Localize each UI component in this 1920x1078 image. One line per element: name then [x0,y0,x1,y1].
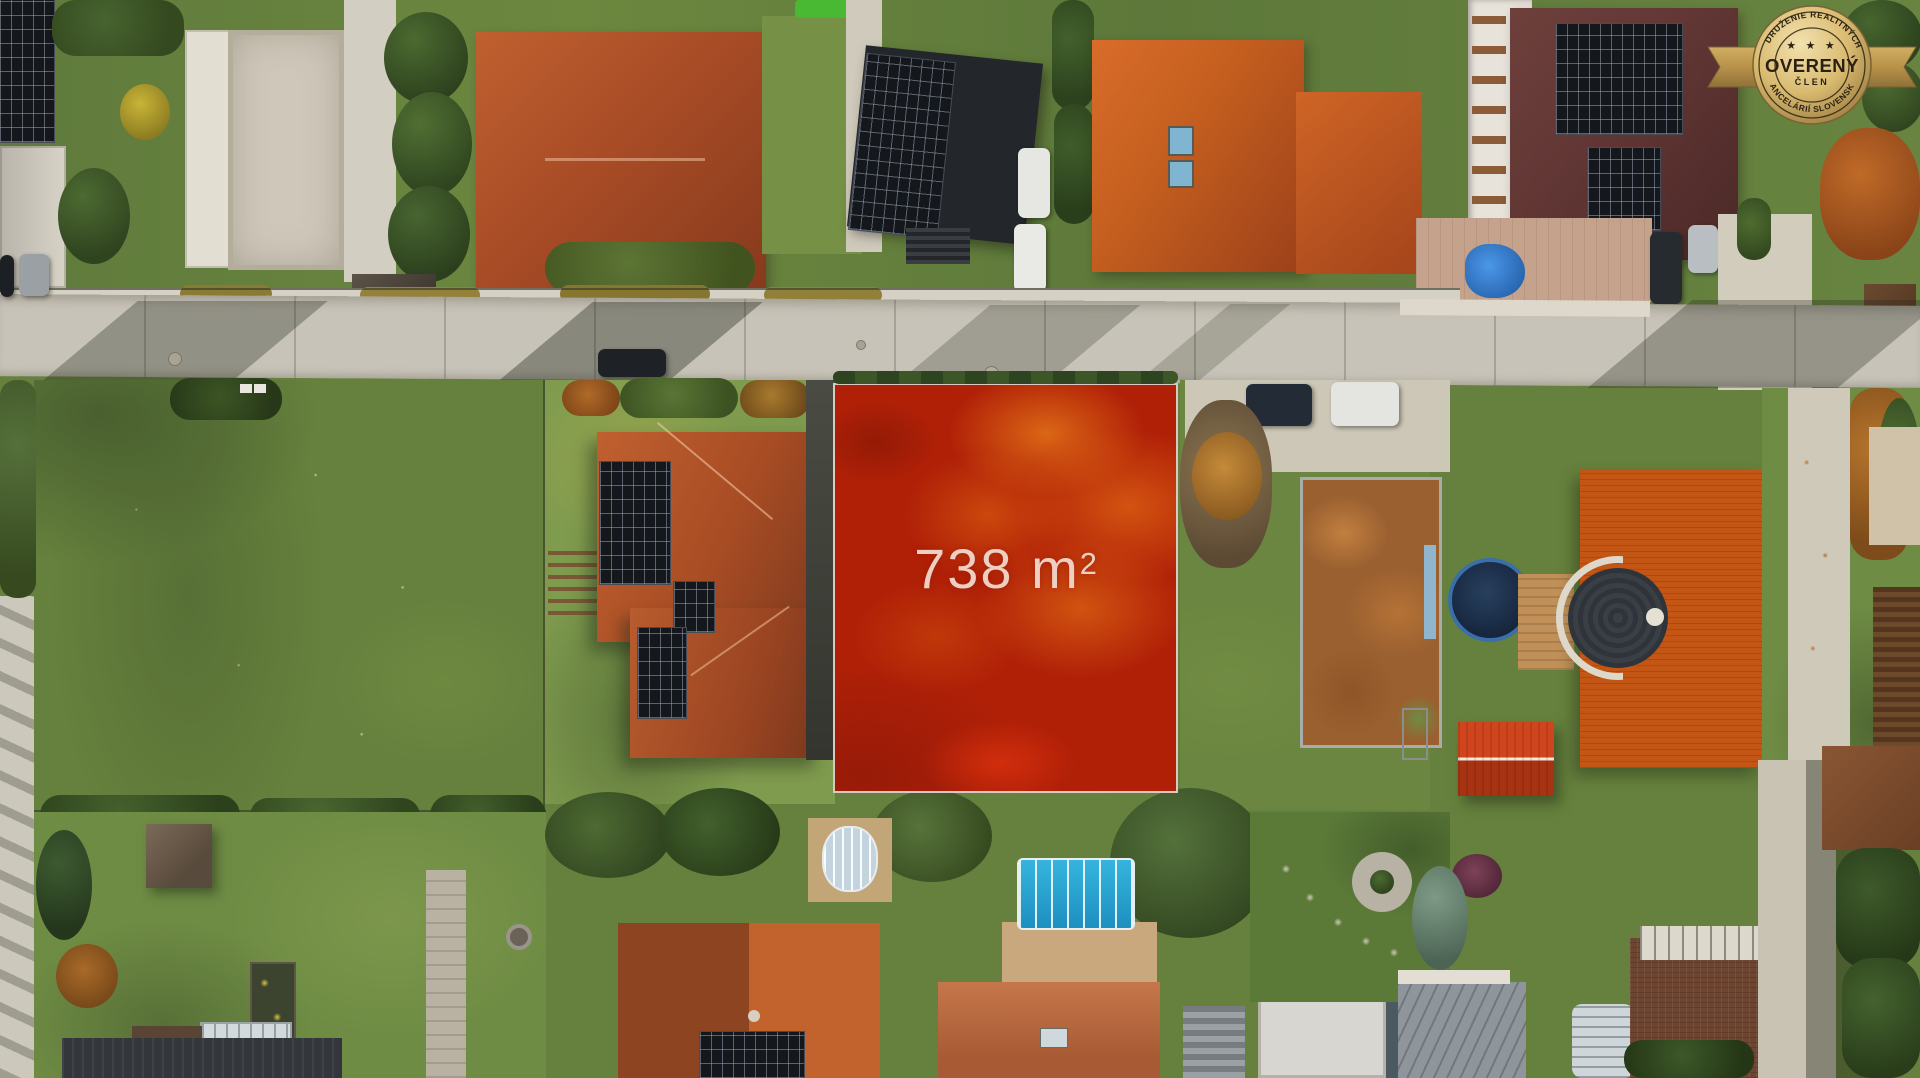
parked-car-far-left [19,254,49,296]
retaining-wall [1400,299,1650,317]
garden-trees [660,788,780,876]
covered-pool-dome [822,826,878,892]
garden-frame [1402,708,1428,760]
parked-dark-car [598,349,666,377]
fire-pit [506,924,532,950]
orange-roof-wing [1296,92,1422,274]
blue-tarp [1465,244,1525,298]
center-shrub [1370,870,1394,894]
skylight [1168,160,1194,188]
right-hedge [1836,848,1920,968]
shrub-row [620,378,738,418]
green-pool [795,0,851,18]
hedge [1054,104,1094,224]
roof-ridge [545,158,705,161]
flat-roof-house [185,30,231,268]
fence-line [0,288,1460,290]
sign-board [240,384,252,393]
silver-car [1688,225,1718,273]
parked-car-far-left [0,255,14,297]
far-right-roof [1869,427,1920,545]
manhole [168,352,182,366]
manhole [856,340,866,350]
solar-thermal-panel [1424,545,1436,639]
tree [384,12,468,104]
far-right-brown-roof [1822,746,1920,850]
solar-roof [0,0,54,142]
plot-area-label: 738 m2 [835,541,1176,597]
aerial-photo: 738 m2 [0,0,1920,1078]
solar-array [700,1032,804,1078]
solar-array [674,582,714,632]
hedge [0,380,36,598]
skylight [1168,126,1194,156]
conifer [36,830,92,940]
solar-roof [849,54,955,238]
hedge [1737,198,1771,260]
white-wall [1398,970,1510,984]
hedge [52,0,184,56]
asphalt-driveway [806,380,836,760]
skylight [1040,1028,1068,1048]
tree [392,92,472,196]
solar-array [1556,24,1682,134]
balcony-rails [1472,8,1506,234]
pergola [548,545,600,615]
badge-stars: ★ ★ ★ [1786,39,1838,52]
blue-pool-enclosure [1017,858,1135,930]
pool-patio [1002,922,1157,986]
badge-title: OVERENÝ [1765,55,1859,76]
dark-gable-house [62,1038,342,1078]
autumn-shrub [56,944,118,1008]
dome-hub [1646,608,1664,626]
bottom-hedge [1624,1040,1754,1078]
conservatory [1640,926,1764,960]
garden-trees [545,792,671,878]
verified-badge: ZDRUŽENIE REALITNÝCH KANCELÁRIÍ SLOVENSK… [1706,0,1918,132]
blue-conifer [1412,866,1468,970]
garden-cabin [146,824,212,888]
solar-array [600,462,670,584]
meadow [34,380,546,812]
right-hedge [1842,958,1920,1078]
red-shed [1458,722,1554,796]
area-unit: m [1031,537,1080,600]
gray-seam-roof-house [1398,982,1526,1078]
gravel-roof [228,30,344,270]
area-exponent: 2 [1080,546,1097,581]
far-right-pergola [1873,587,1920,757]
white-car [1014,224,1046,292]
carport-slats [906,228,970,264]
gray-pergola [1183,1006,1245,1078]
plot-street-hedge [833,371,1178,384]
stone-wall [426,870,466,1078]
badge-subtitle: ČLEN [1795,76,1830,87]
tree [388,186,470,282]
footpath [0,596,34,1078]
dark-car [1650,232,1682,304]
autumn-shrub [740,380,810,418]
area-value: 738 [914,537,1013,600]
tree [58,168,130,264]
orange-roof-house [1092,40,1304,272]
solar-array [638,628,686,718]
highlighted-plot-overlay: 738 m2 [833,383,1178,793]
hedge [1052,0,1094,110]
chimney [748,1010,760,1022]
autumn-shrub [562,380,620,416]
autumn-leaves [1192,432,1262,520]
gravel-lane [1788,388,1850,760]
autumn-tree [1820,128,1920,260]
sign-board [254,384,266,393]
white-car [1331,382,1399,426]
yellow-bush [120,84,170,140]
white-car [1018,148,1050,218]
